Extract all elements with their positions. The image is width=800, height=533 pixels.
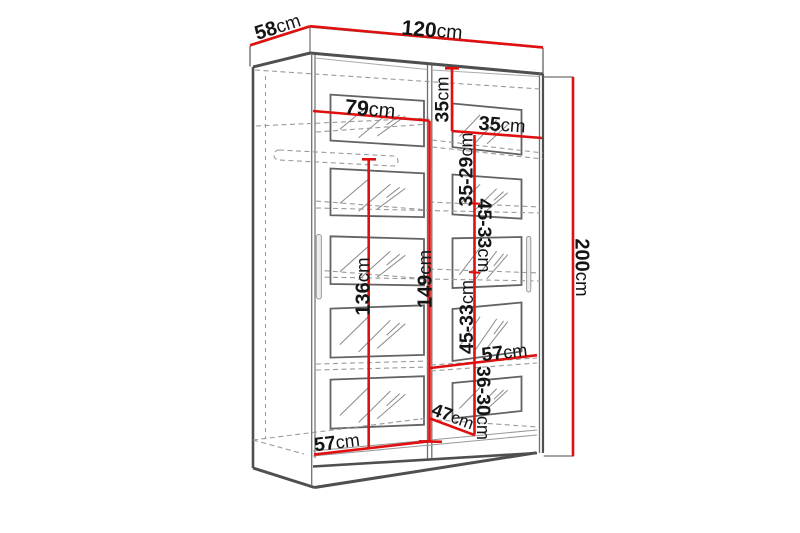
svg-text:136cm: 136cm <box>352 257 374 315</box>
svg-text:149cm: 149cm <box>414 250 436 308</box>
svg-text:35cm: 35cm <box>432 77 454 123</box>
svg-text:35cm: 35cm <box>478 112 526 138</box>
svg-text:200cm: 200cm <box>571 238 593 296</box>
svg-text:36-30cm: 36-30cm <box>472 366 494 440</box>
svg-text:45-33cm: 45-33cm <box>456 280 478 354</box>
svg-text:35-29cm: 35-29cm <box>456 132 478 206</box>
svg-text:57cm: 57cm <box>480 339 528 366</box>
svg-text:45-33cm: 45-33cm <box>473 198 495 272</box>
svg-text:58cm: 58cm <box>252 9 304 45</box>
svg-text:120cm: 120cm <box>401 16 464 44</box>
